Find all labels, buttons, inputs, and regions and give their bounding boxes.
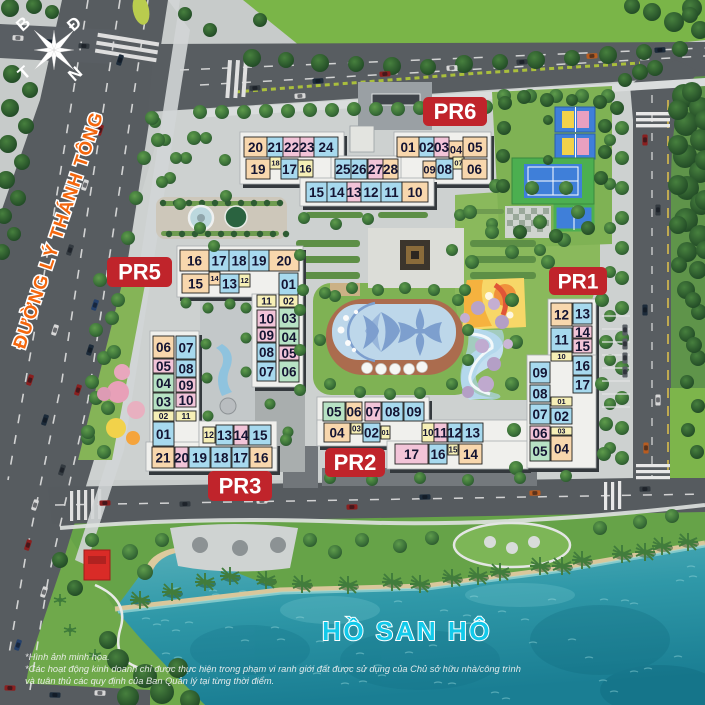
svg-text:19: 19 bbox=[192, 450, 207, 465]
svg-text:08: 08 bbox=[532, 386, 548, 401]
svg-text:09: 09 bbox=[532, 365, 547, 380]
svg-text:11: 11 bbox=[554, 332, 569, 347]
svg-text:03: 03 bbox=[558, 429, 566, 436]
svg-text:15: 15 bbox=[188, 276, 204, 291]
svg-text:18: 18 bbox=[231, 253, 247, 268]
svg-text:06: 06 bbox=[156, 340, 172, 355]
svg-text:28: 28 bbox=[383, 162, 399, 177]
svg-text:11: 11 bbox=[182, 411, 191, 421]
svg-text:04: 04 bbox=[156, 376, 172, 391]
svg-text:17: 17 bbox=[233, 450, 248, 465]
svg-text:21: 21 bbox=[267, 140, 283, 155]
svg-text:PR5: PR5 bbox=[118, 260, 161, 285]
svg-text:07: 07 bbox=[259, 364, 274, 379]
svg-text:20: 20 bbox=[174, 450, 189, 465]
svg-text:10: 10 bbox=[259, 311, 274, 326]
svg-text:PR3: PR3 bbox=[219, 474, 262, 499]
svg-text:16: 16 bbox=[299, 163, 311, 175]
svg-text:15: 15 bbox=[252, 428, 268, 443]
svg-text:16: 16 bbox=[430, 447, 446, 462]
svg-text:05: 05 bbox=[467, 140, 483, 155]
svg-text:07: 07 bbox=[365, 404, 380, 419]
svg-text:20: 20 bbox=[276, 253, 291, 268]
svg-text:27: 27 bbox=[368, 162, 383, 177]
svg-text:10: 10 bbox=[422, 428, 434, 439]
svg-text:06: 06 bbox=[281, 364, 297, 379]
svg-text:11: 11 bbox=[261, 297, 272, 308]
svg-text:*Hình ảnh minh họa.: *Hình ảnh minh họa. bbox=[25, 652, 110, 662]
svg-text:07: 07 bbox=[178, 340, 193, 355]
svg-text:13: 13 bbox=[465, 425, 481, 440]
svg-text:04: 04 bbox=[450, 144, 463, 156]
svg-text:01: 01 bbox=[557, 397, 565, 406]
svg-text:13: 13 bbox=[346, 185, 362, 200]
svg-text:08: 08 bbox=[385, 404, 401, 419]
svg-text:16: 16 bbox=[575, 358, 591, 373]
svg-text:08: 08 bbox=[259, 345, 275, 360]
svg-text:02: 02 bbox=[364, 425, 379, 440]
svg-text:14: 14 bbox=[329, 185, 345, 200]
svg-text:19: 19 bbox=[251, 253, 266, 268]
svg-text:05: 05 bbox=[156, 359, 172, 374]
svg-text:03: 03 bbox=[156, 394, 172, 409]
svg-text:12: 12 bbox=[363, 185, 378, 200]
svg-text:01: 01 bbox=[400, 140, 416, 155]
svg-text:15: 15 bbox=[449, 445, 458, 454]
svg-text:10: 10 bbox=[178, 393, 193, 408]
svg-text:21: 21 bbox=[155, 450, 171, 465]
svg-text:09: 09 bbox=[178, 378, 193, 393]
svg-text:17: 17 bbox=[282, 162, 297, 177]
svg-text:06: 06 bbox=[532, 426, 548, 441]
svg-text:17: 17 bbox=[404, 447, 419, 462]
svg-text:13: 13 bbox=[575, 306, 591, 321]
svg-text:11: 11 bbox=[384, 185, 399, 200]
svg-text:13: 13 bbox=[222, 276, 238, 291]
svg-text:07: 07 bbox=[454, 159, 462, 168]
svg-text:23: 23 bbox=[299, 140, 315, 155]
svg-text:06: 06 bbox=[467, 162, 483, 177]
svg-text:02: 02 bbox=[554, 409, 569, 424]
svg-text:12: 12 bbox=[204, 430, 214, 440]
svg-text:05: 05 bbox=[532, 444, 548, 459]
svg-text:*Các hoạt động kinh doanh chỉ: *Các hoạt động kinh doanh chỉ được thực … bbox=[25, 664, 521, 674]
svg-text:01: 01 bbox=[156, 427, 172, 442]
svg-text:18: 18 bbox=[271, 159, 279, 168]
svg-text:09: 09 bbox=[423, 164, 435, 176]
svg-text:07: 07 bbox=[532, 407, 547, 422]
svg-text:14: 14 bbox=[575, 325, 591, 340]
svg-text:25: 25 bbox=[335, 162, 351, 177]
svg-text:HỒ SAN HÔ: HỒ SAN HÔ bbox=[322, 616, 492, 646]
svg-text:16: 16 bbox=[187, 253, 203, 268]
svg-text:15: 15 bbox=[575, 339, 591, 354]
svg-text:10: 10 bbox=[407, 185, 422, 200]
svg-text:08: 08 bbox=[178, 361, 194, 376]
svg-text:05: 05 bbox=[326, 404, 342, 419]
svg-text:13: 13 bbox=[217, 428, 233, 443]
svg-text:16: 16 bbox=[253, 450, 269, 465]
svg-text:09: 09 bbox=[406, 404, 421, 419]
svg-text:19: 19 bbox=[250, 162, 265, 177]
svg-text:11: 11 bbox=[433, 425, 448, 440]
svg-text:17: 17 bbox=[211, 253, 226, 268]
svg-text:04: 04 bbox=[281, 330, 297, 345]
svg-text:08: 08 bbox=[437, 162, 453, 177]
svg-text:22: 22 bbox=[284, 140, 299, 155]
svg-text:02: 02 bbox=[159, 411, 169, 421]
svg-text:03: 03 bbox=[352, 424, 361, 433]
svg-text:01: 01 bbox=[281, 277, 297, 292]
svg-text:04: 04 bbox=[554, 441, 570, 456]
svg-text:10: 10 bbox=[557, 352, 565, 361]
svg-text:24: 24 bbox=[318, 140, 334, 155]
svg-text:03: 03 bbox=[281, 311, 297, 326]
svg-text:14: 14 bbox=[210, 274, 219, 283]
svg-text:PR1: PR1 bbox=[558, 270, 599, 293]
svg-text:12: 12 bbox=[447, 425, 462, 440]
svg-text:PR6: PR6 bbox=[434, 99, 477, 124]
svg-text:03: 03 bbox=[434, 140, 450, 155]
svg-text:02: 02 bbox=[283, 297, 295, 308]
svg-text:18: 18 bbox=[213, 450, 229, 465]
svg-text:09: 09 bbox=[259, 328, 274, 343]
svg-text:04: 04 bbox=[329, 425, 345, 440]
svg-text:12: 12 bbox=[554, 307, 569, 322]
svg-text:20: 20 bbox=[248, 140, 263, 155]
svg-text:26: 26 bbox=[351, 162, 367, 177]
svg-text:02: 02 bbox=[419, 140, 434, 155]
svg-text:và tuân thủ các quy định của B: và tuân thủ các quy định của Ban Quản lý… bbox=[25, 676, 274, 686]
svg-text:01: 01 bbox=[382, 430, 390, 437]
svg-text:PR2: PR2 bbox=[334, 450, 377, 475]
svg-text:12: 12 bbox=[240, 276, 248, 285]
svg-text:06: 06 bbox=[346, 404, 362, 419]
svg-text:15: 15 bbox=[309, 185, 325, 200]
svg-text:14: 14 bbox=[233, 428, 249, 443]
svg-text:17: 17 bbox=[575, 377, 590, 392]
svg-text:14: 14 bbox=[463, 447, 479, 462]
